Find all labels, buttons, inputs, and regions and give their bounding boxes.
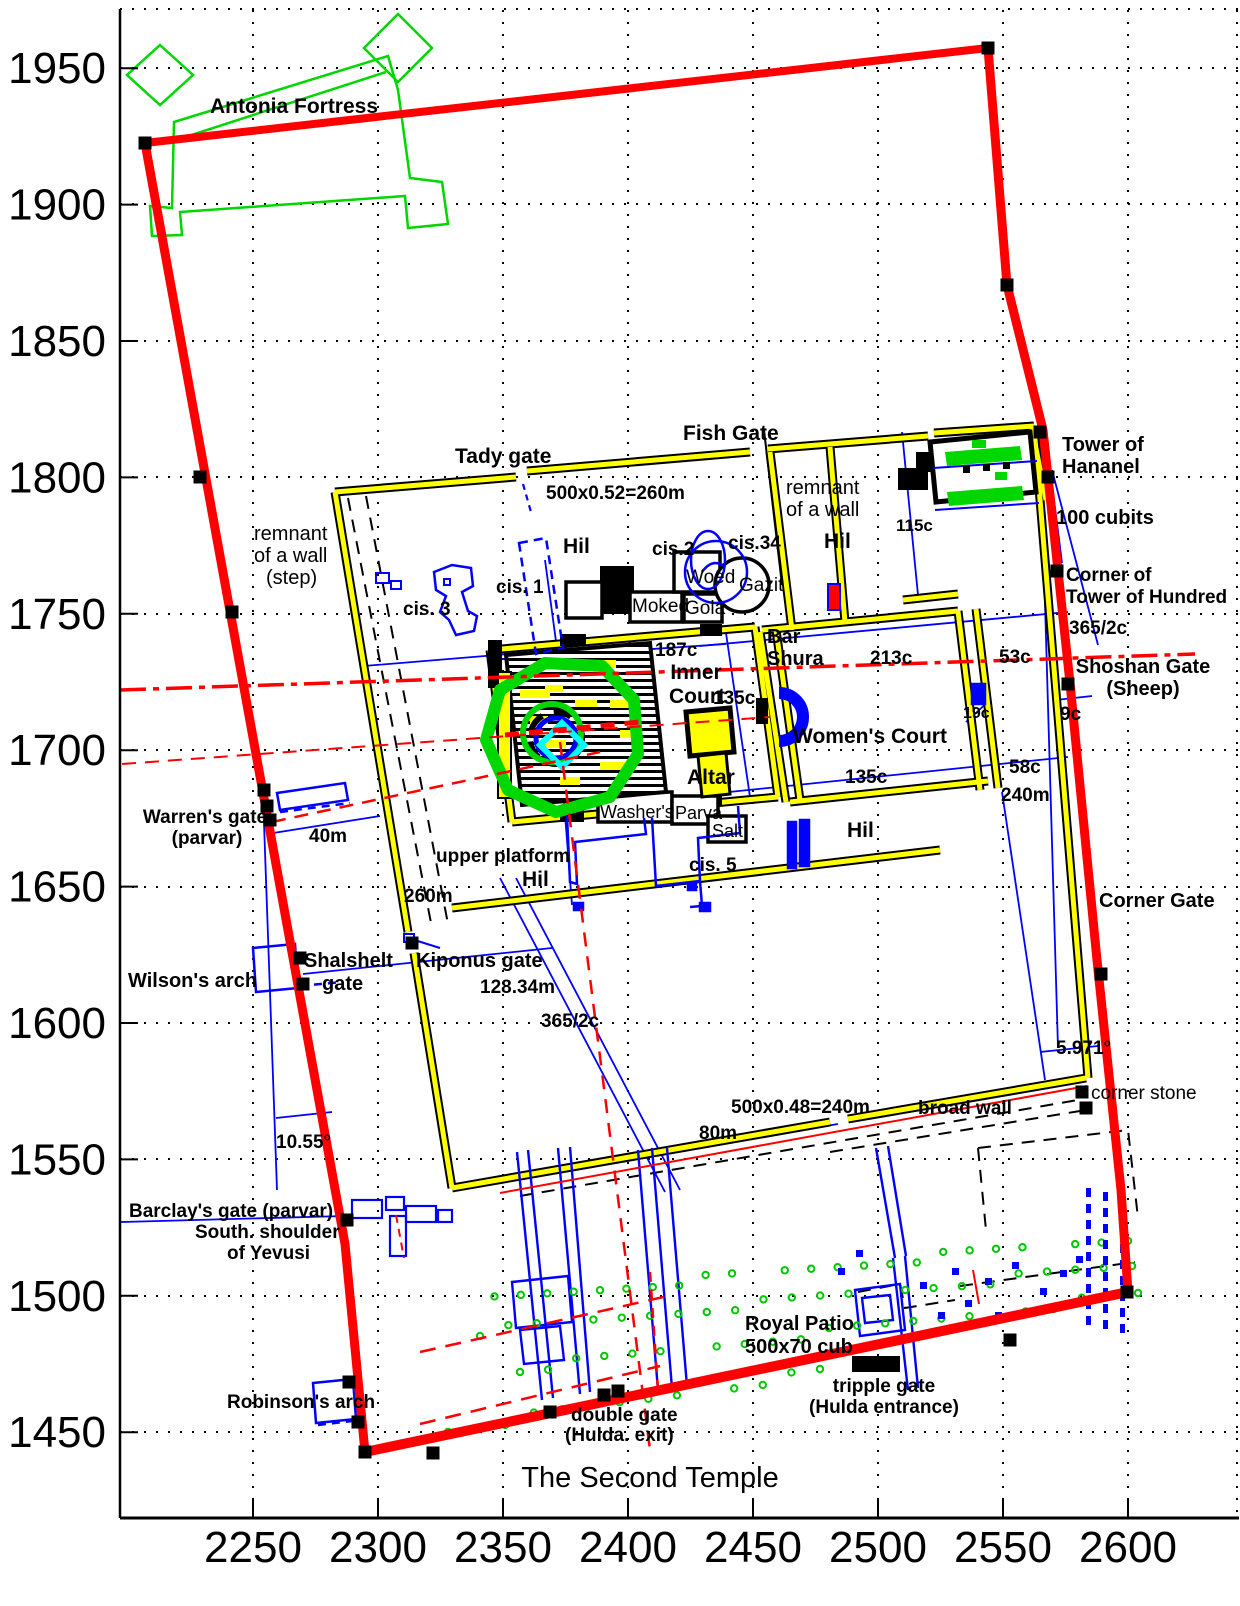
label-12834m: 128.34m	[480, 977, 555, 998]
axis-y-tick-1900: 1900	[8, 181, 106, 230]
label-gazit: Gazit	[739, 575, 784, 596]
wall-marker	[1004, 1334, 1017, 1347]
label-remnant-w-1: remnant	[254, 523, 328, 545]
label-gola: Gola	[685, 598, 726, 619]
label-broad-wall: broad wall	[918, 1098, 1012, 1119]
wall-marker	[612, 1385, 625, 1398]
label-1055deg: 10.55°	[276, 1132, 331, 1153]
label-115c: 115c	[896, 516, 933, 535]
label-hil-east: Hil	[847, 819, 874, 842]
wall-marker	[139, 137, 152, 150]
wall-marker	[226, 606, 239, 619]
wall-marker	[1051, 565, 1064, 578]
label-100-cubits: 100 cubits	[1056, 507, 1154, 529]
axis-x-tick-2300: 2300	[329, 1523, 427, 1572]
wall-marker	[1001, 279, 1014, 292]
plot-title: The Second Temple	[521, 1462, 778, 1494]
label-hil-center: Hil	[522, 868, 549, 891]
label-shalshelt-1: Shalshelt	[304, 950, 393, 972]
label-tower-of-hananel-2: Hananel	[1062, 456, 1140, 478]
axis-y-tick-1500: 1500	[8, 1272, 106, 1321]
label-500x70-cub: 500x70 cub	[745, 1336, 853, 1358]
axis-y-tick-1800: 1800	[8, 453, 106, 502]
label-corner-gate: Corner Gate	[1099, 890, 1215, 912]
wall-marker	[598, 1389, 611, 1402]
label-40m: 40m	[309, 826, 347, 847]
axis-y-tick-1950: 1950	[8, 44, 106, 93]
label-bar-shura-1: Bar	[767, 626, 801, 648]
label-double-gate-1: double gate	[571, 1405, 678, 1426]
wall-marker	[343, 1376, 356, 1389]
label-remnant-w-2: of a wall	[254, 545, 327, 567]
axis-x-tick-2450: 2450	[704, 1523, 802, 1572]
axis-y-tick-1700: 1700	[8, 726, 106, 775]
label-19c: 19c	[963, 705, 990, 722]
label-antonia-fortress: Antonia Fortress	[210, 95, 378, 118]
second-temple-map: Antonia FortressTady gateFish Gate500x0.…	[0, 0, 1240, 1601]
axis-x-tick-2550: 2550	[954, 1523, 1052, 1572]
label-barclays-gate: Barclay's gate (parvar)	[129, 1201, 333, 1222]
label-fish-gate: Fish Gate	[683, 422, 779, 445]
label-parva: Parva	[675, 803, 723, 823]
label-wilsons-arch: Wilson's arch	[128, 970, 257, 992]
label-corner-stone: corner stone	[1091, 1083, 1197, 1104]
label-corner-of-tower-1: Corner of	[1066, 565, 1152, 586]
label-135c-south: 135c	[845, 767, 888, 788]
label-remnant-ne-2: of a wall	[786, 499, 859, 521]
label-tripple-gate-1: tripple gate	[833, 1376, 935, 1397]
label-south-shoulder-1: South. shoulder	[195, 1222, 340, 1243]
label-royal-patio: Royal Patio	[745, 1313, 854, 1335]
axis-y-tick-1450: 1450	[8, 1408, 106, 1457]
label-shoshan-gate-1: Shoshan Gate	[1076, 656, 1210, 678]
label-365-2c-east: 365/2c	[1069, 618, 1128, 639]
axis-y-tick-1750: 1750	[8, 590, 106, 639]
label-cis-3: cis. 3	[403, 599, 451, 620]
axis-x-tick-2350: 2350	[454, 1523, 552, 1572]
wall-marker	[341, 1214, 354, 1227]
label-robinsons-arch: Robinson's arch	[227, 1392, 375, 1413]
label-hil-nw: Hil	[563, 535, 590, 558]
label-warrens-gate-2: (parvar)	[172, 828, 243, 849]
label-hil-ne: Hil	[824, 530, 851, 553]
label-213c: 213c	[870, 648, 913, 669]
label-double-gate-2: (Hulda. exit)	[565, 1425, 674, 1446]
axis-x-tick-2500: 2500	[829, 1523, 927, 1572]
label-cis-1: cis. 1	[496, 577, 544, 598]
label-inner-court-1: Inner	[670, 661, 721, 684]
label-58c: 58c	[1009, 757, 1041, 778]
label-altar: Altar	[687, 766, 735, 789]
label-north-wall-measure: 500x0.52=260m	[546, 483, 685, 504]
label-kiponus-gate: Kiponus gate	[416, 950, 543, 972]
label-80m: 80m	[699, 1123, 737, 1144]
wall-marker	[297, 978, 310, 991]
label-240m: 240m	[1001, 785, 1050, 806]
axis-y-tick-1650: 1650	[8, 863, 106, 912]
wall-marker	[1034, 426, 1047, 439]
wall-marker	[194, 471, 207, 484]
axis-y-tick-1850: 1850	[8, 317, 106, 366]
label-shalshelt-2: gate	[322, 973, 363, 995]
label-south-wall-measure: 500x0.48=240m	[731, 1097, 870, 1118]
axis-x-tick-2400: 2400	[579, 1523, 677, 1572]
label-washers: Washer's	[600, 802, 674, 822]
label-bar-shura-2: Shura	[767, 648, 825, 670]
label-warrens-gate-1: Warren's gate	[143, 807, 267, 828]
wall-marker	[427, 1447, 440, 1460]
second-temple-plot: Antonia FortressTady gateFish Gate500x0.…	[0, 0, 1240, 1601]
wall-remnant-marker	[828, 584, 840, 610]
label-9c: 9c	[1060, 704, 1082, 725]
label-remnant-w-3: (step)	[266, 567, 317, 589]
axis-y-tick-1600: 1600	[8, 999, 106, 1048]
label-cis-34: cis.34	[728, 533, 781, 554]
label-remnant-ne-1: remnant	[786, 477, 860, 499]
label-tady-gate: Tady gate	[455, 445, 551, 468]
wall-marker	[1076, 1086, 1089, 1099]
wall-marker	[359, 1446, 372, 1459]
chamber-box	[566, 582, 602, 618]
wall-marker	[352, 1416, 365, 1429]
label-cis-5: cis. 5	[689, 855, 737, 876]
label-tripple-gate-2: (Hulda entrance)	[809, 1397, 959, 1418]
label-135c-west: 135c	[713, 688, 756, 709]
label-5971deg: 5.971°	[1056, 1038, 1111, 1059]
label-53c: 53c	[999, 647, 1031, 668]
axis-y-tick-1550: 1550	[8, 1135, 106, 1184]
label-365-2c-west: 365/2c	[541, 1011, 600, 1032]
wall-marker	[982, 42, 995, 55]
label-260m: 260m	[404, 886, 453, 907]
label-moked: Moked	[632, 596, 689, 617]
label-tower-of-hananel-1: Tower of	[1062, 434, 1144, 456]
label-south-shoulder-2: of Yevusi	[227, 1243, 310, 1264]
axis-x-tick-2600: 2600	[1079, 1523, 1177, 1572]
wall-marker	[544, 1406, 557, 1419]
wall-marker	[1121, 1286, 1134, 1299]
axis-x-tick-2250: 2250	[204, 1523, 302, 1572]
wall-marker	[406, 937, 419, 950]
label-woed: Woed	[686, 567, 735, 588]
wall-marker	[258, 784, 271, 797]
label-upper-platform: upper platform	[436, 846, 570, 867]
wall-marker	[1095, 968, 1108, 981]
label-corner-of-tower-2: Tower of Hundred	[1066, 587, 1227, 608]
label-womens-court: Women's Court	[793, 725, 947, 748]
wall-marker	[1042, 471, 1055, 484]
triple-gate-marker	[852, 1356, 900, 1372]
wall-marker	[1062, 678, 1075, 691]
label-cis-2: cis.2	[652, 539, 694, 560]
label-shoshan-gate-2: (Sheep)	[1106, 678, 1179, 700]
label-salt: Salt	[712, 821, 743, 841]
label-187c: 187c	[655, 640, 698, 661]
